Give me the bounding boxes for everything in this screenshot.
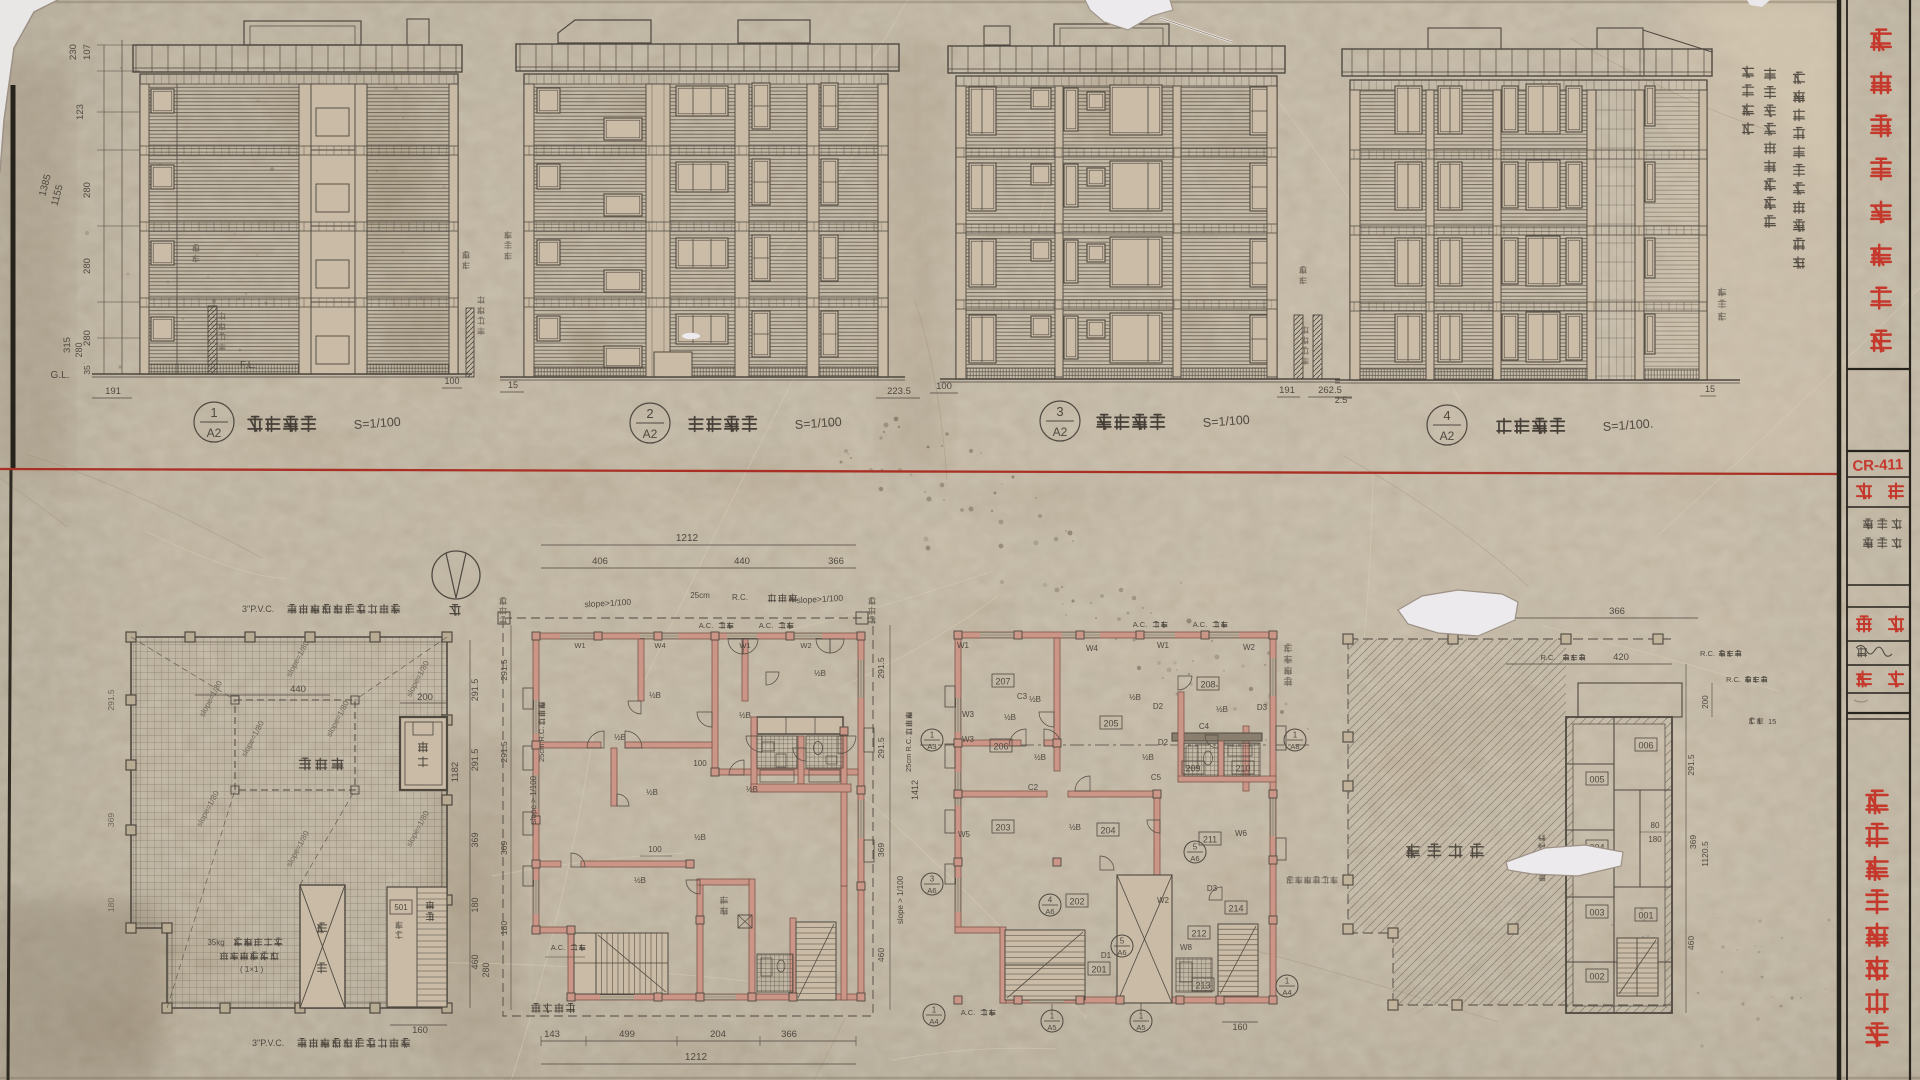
svg-text:200: 200 [1701, 695, 1710, 709]
svg-text:W2: W2 [1157, 896, 1170, 905]
svg-text:A.C.: A.C. [1193, 620, 1208, 629]
svg-text:A2: A2 [1440, 429, 1455, 443]
svg-text:100: 100 [936, 381, 952, 392]
svg-text:A.C.: A.C. [961, 1008, 976, 1017]
svg-text:A5: A5 [1047, 1023, 1056, 1032]
svg-text:003: 003 [1589, 908, 1604, 918]
svg-text:223.5: 223.5 [887, 386, 911, 397]
svg-text:½B: ½B [1129, 693, 1141, 702]
svg-text:W3: W3 [962, 710, 975, 719]
svg-text:A8: A8 [1290, 742, 1299, 751]
svg-text:420: 420 [1613, 652, 1629, 663]
svg-text:369: 369 [470, 832, 480, 847]
svg-text:100: 100 [648, 845, 662, 854]
svg-text:200: 200 [417, 692, 433, 703]
svg-text:180: 180 [106, 898, 116, 912]
svg-text:D3: D3 [1207, 884, 1218, 893]
svg-text:R.C.: R.C. [1726, 675, 1741, 684]
svg-text:25cm: 25cm [690, 591, 710, 600]
svg-text:3"P.V.C.: 3"P.V.C. [242, 604, 274, 614]
svg-text:3"P.V.C.: 3"P.V.C. [252, 1038, 284, 1048]
svg-text:499: 499 [619, 1029, 635, 1040]
svg-text:C3: C3 [1017, 692, 1028, 701]
svg-text:204: 204 [710, 1029, 726, 1040]
svg-text:203: 203 [995, 823, 1010, 833]
svg-text:A6: A6 [1190, 854, 1199, 863]
svg-text:001: 001 [1638, 911, 1653, 921]
svg-text:369: 369 [499, 841, 509, 855]
svg-text:205: 205 [1103, 719, 1118, 729]
svg-text:4: 4 [1048, 896, 1053, 905]
svg-text:191: 191 [1279, 385, 1295, 396]
svg-text:25cm R.C.: 25cm R.C. [904, 737, 913, 772]
svg-text:C2: C2 [1028, 783, 1039, 792]
svg-text:15: 15 [1705, 384, 1715, 394]
svg-text:D2: D2 [1153, 702, 1164, 711]
svg-text:A.C.: A.C. [551, 943, 566, 952]
svg-text:CR-411: CR-411 [1852, 456, 1903, 475]
svg-text:W4: W4 [654, 641, 665, 650]
svg-text:W1: W1 [574, 641, 585, 650]
svg-text:W6: W6 [1235, 829, 1248, 838]
svg-text:440: 440 [734, 556, 750, 567]
svg-text:F.L.: F.L. [240, 360, 256, 371]
svg-text:100: 100 [693, 759, 707, 768]
svg-text:3: 3 [930, 875, 935, 884]
svg-text:1: 1 [210, 405, 217, 420]
svg-text:291.5: 291.5 [470, 679, 480, 702]
svg-text:35kg: 35kg [207, 938, 224, 947]
svg-text:slope > 1/100: slope > 1/100 [529, 775, 538, 824]
svg-text:366: 366 [781, 1029, 797, 1040]
svg-text:A6: A6 [927, 886, 936, 895]
svg-text:202: 202 [1069, 897, 1084, 907]
svg-text:A3: A3 [927, 742, 936, 751]
svg-text:A2: A2 [1053, 425, 1068, 439]
svg-text:½B: ½B [1142, 753, 1154, 762]
svg-text:006: 006 [1638, 741, 1653, 751]
svg-text:280: 280 [82, 182, 93, 198]
svg-text:2.5: 2.5 [1335, 395, 1348, 405]
svg-text:123: 123 [75, 104, 86, 120]
svg-text:100: 100 [444, 376, 459, 386]
svg-text:291.5: 291.5 [499, 659, 509, 681]
svg-text:107: 107 [82, 44, 93, 60]
svg-text:210: 210 [1235, 764, 1250, 774]
svg-text:½B: ½B [746, 785, 758, 794]
svg-text:460: 460 [876, 948, 886, 962]
svg-text:½B: ½B [1004, 713, 1016, 722]
svg-text:180: 180 [1648, 835, 1662, 844]
svg-text:W3: W3 [962, 735, 975, 744]
svg-text:280: 280 [481, 962, 491, 977]
svg-text:208: 208 [1200, 680, 1215, 690]
svg-text:440: 440 [290, 684, 306, 695]
svg-text:80: 80 [1651, 821, 1660, 830]
svg-text:1: 1 [930, 731, 935, 740]
svg-text:501: 501 [394, 903, 408, 912]
svg-text:½B: ½B [646, 788, 658, 797]
svg-text:291.5: 291.5 [876, 737, 886, 759]
svg-text:214: 214 [1228, 904, 1243, 914]
svg-text:366: 366 [1609, 606, 1625, 617]
svg-text:15: 15 [1768, 717, 1776, 726]
svg-text:½B: ½B [649, 691, 661, 700]
svg-text:366: 366 [828, 556, 844, 567]
svg-text:R.C.: R.C. [1700, 649, 1715, 658]
svg-text:369: 369 [876, 843, 886, 857]
svg-text:W2: W2 [1243, 643, 1256, 652]
svg-text:369: 369 [1688, 835, 1698, 849]
svg-text:180: 180 [499, 921, 509, 935]
svg-text:230: 230 [68, 44, 79, 60]
svg-text:206: 206 [993, 742, 1008, 752]
svg-text:291.5: 291.5 [470, 749, 480, 772]
svg-text:A2: A2 [207, 426, 222, 440]
svg-text:A5: A5 [1136, 1023, 1145, 1032]
svg-text:W1: W1 [957, 641, 970, 650]
svg-text:280: 280 [82, 258, 93, 274]
svg-text:460: 460 [1686, 936, 1696, 950]
svg-text:A.C.: A.C. [699, 621, 714, 630]
svg-text:G.L.: G.L. [51, 370, 70, 381]
svg-text:201: 201 [1091, 965, 1106, 975]
svg-text:005: 005 [1589, 775, 1604, 785]
svg-text:160: 160 [412, 1025, 428, 1036]
svg-text:1: 1 [1050, 1012, 1055, 1021]
svg-text:( 1×1 ): ( 1×1 ) [240, 965, 264, 974]
svg-text:1212: 1212 [685, 1052, 708, 1063]
svg-text:½B: ½B [814, 669, 826, 678]
svg-text:W4: W4 [1086, 644, 1099, 653]
svg-text:207: 207 [995, 677, 1010, 687]
svg-text:2: 2 [646, 406, 653, 421]
svg-text:35: 35 [82, 365, 92, 375]
svg-text:315: 315 [62, 337, 73, 353]
svg-text:A.C.: A.C. [1133, 620, 1148, 629]
svg-text:5: 5 [1193, 843, 1198, 852]
svg-text:½B: ½B [634, 876, 646, 885]
svg-text:191: 191 [105, 386, 121, 397]
svg-text:½B: ½B [1216, 705, 1228, 714]
svg-text:W1: W1 [1157, 641, 1170, 650]
svg-text:460: 460 [470, 954, 480, 969]
svg-text:W5: W5 [958, 830, 971, 839]
svg-text:W1: W1 [739, 641, 750, 650]
svg-text:212: 212 [1191, 929, 1206, 939]
svg-text:1412: 1412 [910, 780, 920, 800]
svg-text:15: 15 [508, 380, 518, 390]
svg-text:A6: A6 [1117, 948, 1126, 957]
svg-text:291.5: 291.5 [1686, 754, 1696, 776]
svg-text:204: 204 [1100, 826, 1115, 836]
svg-text:slope > 1/100: slope > 1/100 [896, 875, 905, 924]
svg-text:A4: A4 [1282, 988, 1291, 997]
svg-text:W8: W8 [1180, 943, 1193, 952]
svg-text:D3: D3 [1257, 703, 1268, 712]
svg-text:1: 1 [1293, 731, 1298, 740]
svg-text:1120.5: 1120.5 [1700, 841, 1710, 867]
svg-text:½B: ½B [1034, 753, 1046, 762]
svg-text:369: 369 [106, 813, 116, 827]
svg-text:C5: C5 [1151, 773, 1162, 782]
svg-text:1: 1 [932, 1006, 937, 1015]
svg-text:406: 406 [592, 556, 608, 567]
svg-text:C4: C4 [1199, 722, 1210, 731]
svg-text:A2: A2 [643, 427, 658, 441]
svg-text:½B: ½B [1069, 823, 1081, 832]
svg-text:213: 213 [1195, 981, 1210, 991]
svg-text:A4: A4 [929, 1017, 938, 1026]
svg-text:R.C.: R.C. [732, 593, 748, 602]
svg-text:180: 180 [470, 897, 480, 912]
svg-text:291.5: 291.5 [499, 741, 509, 763]
svg-text:4: 4 [1443, 408, 1450, 423]
svg-text:A.C.: A.C. [759, 621, 774, 630]
svg-text:280: 280 [74, 342, 84, 357]
svg-text:1182: 1182 [450, 762, 461, 782]
svg-text:211: 211 [1203, 835, 1217, 845]
svg-text:½B: ½B [739, 711, 751, 720]
svg-text:D1: D1 [1101, 951, 1112, 960]
svg-text:291.5: 291.5 [876, 657, 886, 679]
svg-text:002: 002 [1589, 972, 1604, 982]
svg-text:W2: W2 [800, 641, 811, 650]
svg-text:½B: ½B [694, 833, 706, 842]
svg-text:D2: D2 [1158, 738, 1169, 747]
svg-text:R.C.: R.C. [1541, 653, 1556, 662]
svg-text:½B: ½B [1029, 695, 1041, 704]
svg-text:A6: A6 [1045, 907, 1054, 916]
svg-text:1: 1 [1285, 977, 1290, 986]
svg-text:291.5: 291.5 [106, 689, 116, 711]
svg-text:1: 1 [1139, 1012, 1144, 1021]
svg-text:3: 3 [1056, 404, 1063, 419]
svg-text:209: 209 [1185, 764, 1200, 774]
svg-text:5: 5 [1120, 937, 1125, 946]
svg-text:160: 160 [1232, 1022, 1247, 1032]
svg-text:1212: 1212 [676, 533, 699, 544]
svg-text:½B: ½B [614, 733, 626, 742]
svg-text:143: 143 [544, 1029, 560, 1040]
svg-text:25cm R.C.: 25cm R.C. [537, 727, 546, 762]
